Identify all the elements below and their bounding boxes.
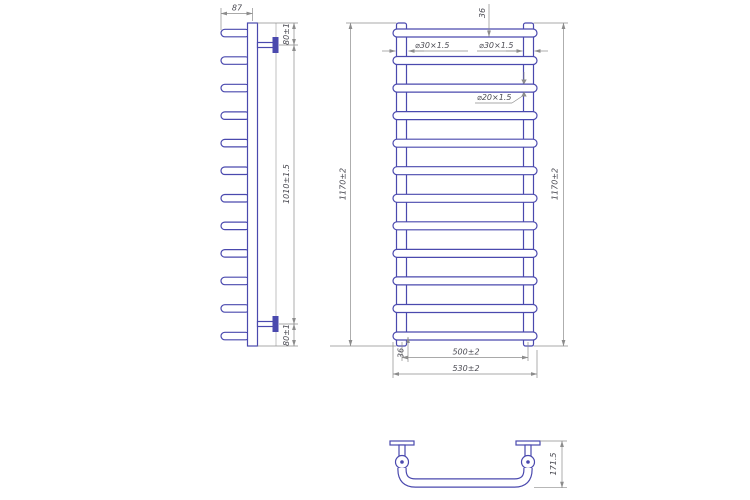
front-left-tube [397, 23, 407, 346]
rung [393, 29, 537, 37]
rung [393, 167, 537, 175]
rung [393, 332, 537, 340]
dim-label-530: 530±2 [452, 364, 479, 373]
dim-axis-width: 500±2 [402, 342, 528, 361]
dim-label-d30-left: ⌀30×1.5 [415, 41, 449, 50]
bracket-stem-right [525, 445, 531, 456]
rung-stub [221, 84, 250, 92]
bracket-stem [258, 43, 274, 48]
rung [393, 249, 537, 257]
rung-stub [221, 277, 250, 285]
bottom-view: 171.5 [390, 441, 567, 488]
technical-drawing-canvas: 87 80±1 1010±1.5 80±1 1170±2 [0, 0, 750, 500]
front-rungs [393, 29, 537, 340]
flange-plate-right [516, 441, 540, 445]
dim-label-top-bracket: 80±1 [282, 23, 291, 45]
u-tube-inner [402, 468, 528, 483]
rung-stub [221, 57, 250, 65]
rung-stub [221, 222, 250, 230]
dim-label-87: 87 [232, 4, 243, 13]
dim-label-height-left: 1170±2 [339, 168, 348, 200]
dim-label-bracket-span: 1010±1.5 [282, 164, 291, 204]
dim-side-tube-left: ⌀30×1.5 [382, 41, 468, 51]
rung [393, 305, 537, 313]
side-vertical-tube [248, 23, 258, 346]
bracket-flange [273, 316, 279, 332]
flange-plate-left [390, 441, 414, 445]
rung [393, 222, 537, 230]
bracket-stem [258, 322, 274, 327]
collar-center-right [526, 460, 530, 464]
side-view: 87 80±1 1010±1.5 80±1 [221, 4, 298, 347]
collar-center-left [400, 460, 404, 464]
bracket-flange [273, 37, 279, 53]
dim-label-bottom-bracket: 80±1 [282, 324, 291, 346]
dim-depth: 171.5 [534, 441, 567, 488]
bracket-stem-left [399, 445, 405, 456]
rung-stub [221, 167, 250, 175]
rung-stub [221, 332, 250, 340]
dim-bracket-offsets: 80±1 1010±1.5 80±1 [258, 23, 299, 346]
dim-label-36-top: 36 [478, 8, 487, 18]
rung-stub [221, 112, 250, 120]
front-right-tube [524, 23, 534, 346]
dim-label-d20: ⌀20×1.5 [477, 93, 511, 102]
front-view: 1170±2 1170±2 36 36 ⌀30×1.5 [330, 4, 568, 378]
dim-label-36-bottom: 36 [397, 348, 406, 358]
rung-stub [221, 250, 250, 258]
rung-stub [221, 195, 250, 203]
dim-height-left: 1170±2 [330, 23, 397, 346]
rung [393, 277, 537, 285]
rung-stub [221, 305, 250, 313]
dim-height-right: 1170±2 [534, 23, 569, 346]
rung [393, 57, 537, 65]
rung-stub [221, 139, 250, 147]
dim-side-tube-right: ⌀30×1.5 [477, 41, 548, 51]
dim-label-500: 500±2 [452, 348, 479, 357]
rung [393, 139, 537, 147]
towel-rail-drawing: 87 80±1 1010±1.5 80±1 1170±2 [0, 0, 750, 500]
dim-label-height-right: 1170±2 [551, 168, 560, 200]
rung [393, 112, 537, 120]
rung-stub [221, 29, 250, 37]
rung [393, 194, 537, 202]
dim-label-d30-right: ⌀30×1.5 [479, 41, 513, 50]
wall-bracket-bottom [258, 316, 279, 332]
dim-label-depth: 171.5 [549, 453, 558, 476]
side-rung-stubs [221, 29, 250, 340]
wall-bracket-top [258, 37, 279, 53]
rung [393, 84, 537, 92]
